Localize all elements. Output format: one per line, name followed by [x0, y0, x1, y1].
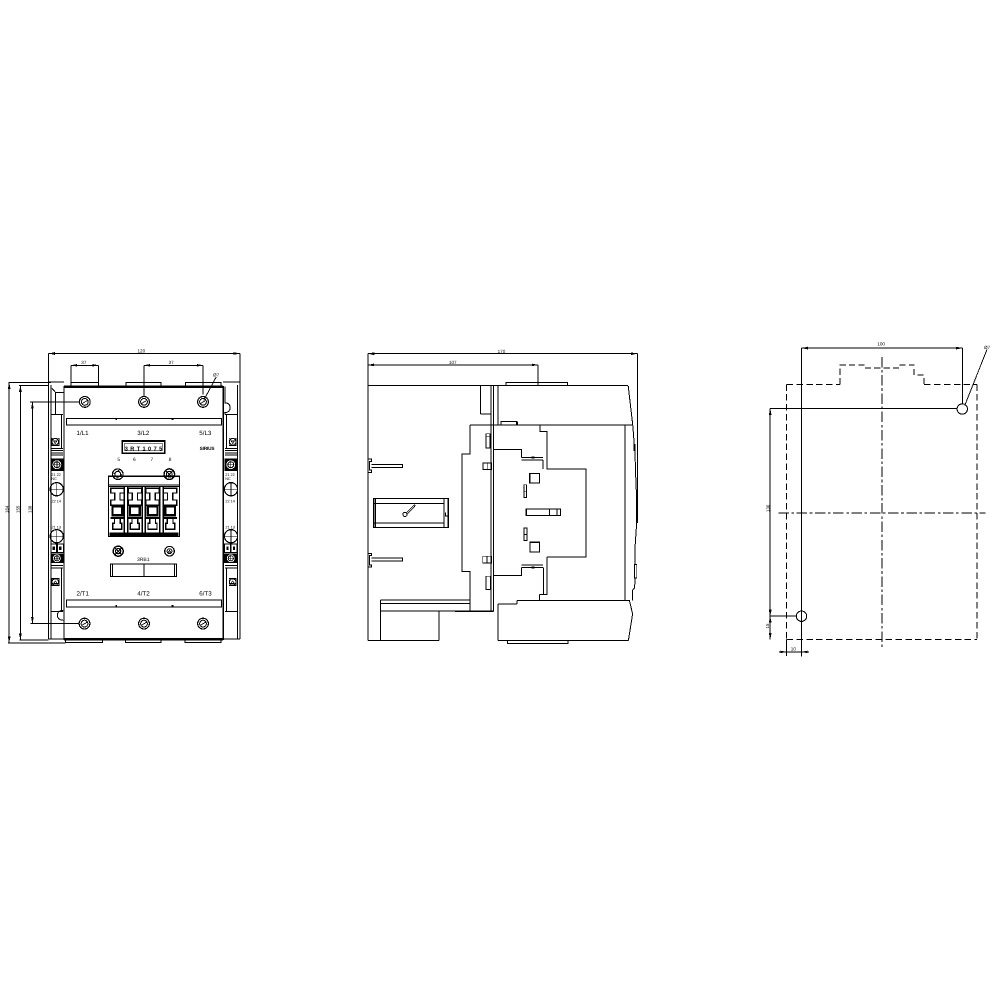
- svg-text:2/T1: 2/T1: [77, 591, 90, 598]
- svg-text:120: 120: [138, 349, 146, 354]
- svg-text:37: 37: [81, 360, 87, 365]
- svg-text:3/L2: 3/L2: [137, 430, 150, 437]
- svg-text:130: 130: [765, 504, 770, 512]
- svg-text:6: 6: [133, 457, 136, 463]
- svg-text:100: 100: [877, 342, 885, 347]
- svg-text:Ø7: Ø7: [984, 345, 991, 350]
- svg-text:22 14: 22 14: [52, 500, 62, 504]
- svg-text:3RT1075: 3RT1075: [125, 446, 162, 452]
- svg-text:4/T2: 4/T2: [137, 591, 150, 598]
- svg-text:164: 164: [4, 505, 9, 513]
- svg-text:170: 170: [498, 349, 506, 354]
- svg-text:37: 37: [169, 360, 175, 365]
- svg-text:5/L3: 5/L3: [199, 430, 212, 437]
- svg-text:SIRIUS: SIRIUS: [200, 446, 215, 451]
- svg-text:107: 107: [449, 360, 457, 365]
- svg-text:6/T3: 6/T3: [199, 591, 212, 598]
- svg-text:Ø7: Ø7: [213, 373, 220, 378]
- svg-text:21 13: 21 13: [52, 525, 62, 529]
- svg-text:21 13: 21 13: [225, 525, 235, 529]
- svg-text:NC: NC: [51, 477, 57, 481]
- svg-text:10: 10: [791, 646, 797, 651]
- svg-text:8: 8: [169, 457, 172, 463]
- svg-text:15: 15: [765, 623, 770, 628]
- svg-text:NC: NC: [225, 477, 231, 481]
- svg-text:155: 155: [16, 505, 21, 513]
- svg-text:22 14: 22 14: [225, 500, 235, 504]
- svg-text:5: 5: [117, 457, 120, 463]
- svg-text:3RB1: 3RB1: [137, 557, 150, 563]
- svg-text:138: 138: [28, 505, 33, 513]
- svg-text:7: 7: [151, 457, 154, 463]
- svg-text:1/L1: 1/L1: [77, 430, 90, 437]
